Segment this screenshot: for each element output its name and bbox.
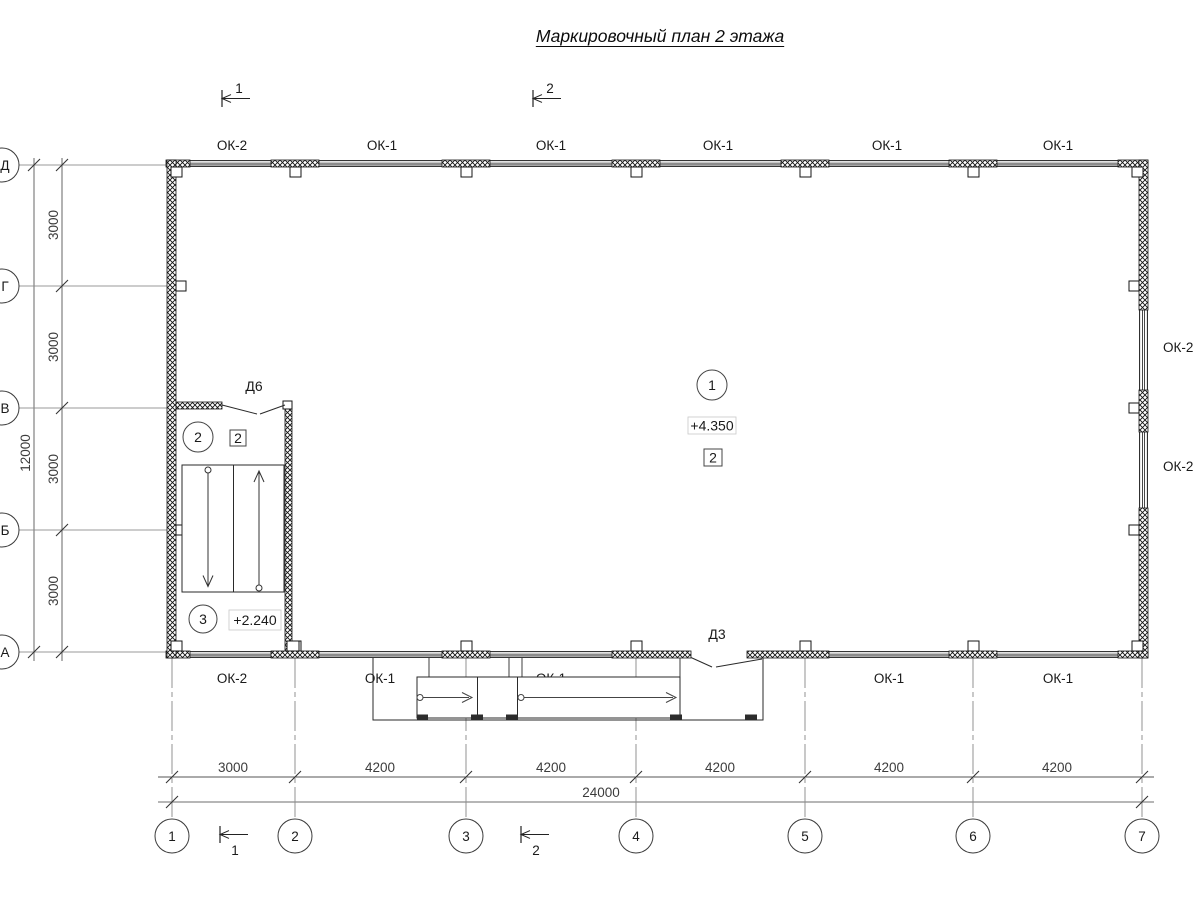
window-label-top: ОК-1 (536, 138, 566, 153)
window-labels: ОК-2ОК-1ОК-1ОК-1ОК-1ОК-1ОК-2ОК-1ОК-1ОК-1… (217, 138, 1194, 686)
section-marker-top-1: 1 (222, 81, 250, 107)
exterior-staircase (373, 658, 763, 721)
plan-canvas: 3000420042004200420042002400030003000300… (0, 0, 1200, 900)
elevation-mark: +4.350 (690, 418, 733, 434)
window-label-right: ОК-2 (1163, 340, 1193, 355)
dimension-label: 3000 (46, 576, 61, 606)
dimension-total-label: 24000 (582, 785, 620, 800)
window-label-top: ОК-1 (367, 138, 397, 153)
section-label: 2 (532, 843, 540, 858)
axis-column-bubble-label: 4 (632, 829, 640, 844)
dimension-label: 4200 (536, 760, 566, 775)
dimension-label: 4200 (1042, 760, 1072, 775)
axis-column-bubble-label: 1 (168, 829, 176, 844)
window-openings (190, 161, 1147, 658)
exterior-walls (166, 160, 1148, 658)
window-label-top: ОК-1 (703, 138, 733, 153)
wall-piers (171, 167, 1143, 651)
room-mark-hall: 1 +4.350 2 (688, 370, 736, 466)
axis-column-bubble-label: 7 (1138, 829, 1146, 844)
window-label-right: ОК-2 (1163, 459, 1193, 474)
dimension-label: 3000 (46, 210, 61, 240)
axis-row-bubble-label: Б (1, 523, 10, 538)
section-marker-bottom-2: 2 (521, 826, 549, 858)
section-label: 1 (235, 81, 243, 96)
dimension-label: 3000 (46, 332, 61, 362)
floor-plan-drawing: Маркировочный план 2 этажа 3000420042004… (0, 0, 1200, 900)
finish-tag: 2 (709, 450, 717, 466)
dimension-total-label: 12000 (18, 434, 33, 472)
dimension-label: 4200 (874, 760, 904, 775)
window-label-bottom: ОК-1 (365, 671, 395, 686)
dimension-label: 4200 (365, 760, 395, 775)
axis-column-bubble-label: 2 (291, 829, 299, 844)
section-marker-bottom-1: 1 (220, 826, 248, 858)
window-label-bottom: ОК-1 (874, 671, 904, 686)
door-d6-leaves (222, 405, 285, 414)
door-label-d6: Д6 (245, 378, 262, 394)
window-label-bottom: ОК-2 (217, 671, 247, 686)
room-mark-stair-upper: 2 2 (183, 422, 246, 452)
window-label-top: ОК-1 (1043, 138, 1073, 153)
section-label: 2 (546, 81, 554, 96)
dimension-label: 4200 (705, 760, 735, 775)
axis-column-bubble-label: 5 (801, 829, 809, 844)
room-mark-stair-lower: 3 +2.240 (189, 605, 281, 633)
axis-row-bubble-label: Г (1, 279, 9, 294)
elevation-mark: +2.240 (233, 612, 276, 628)
window-label-top: ОК-2 (217, 138, 247, 153)
room-number: 3 (199, 611, 207, 627)
axis-row-bubble-label: Д (0, 158, 9, 173)
finish-tag: 2 (234, 430, 242, 446)
dimension-label: 3000 (46, 454, 61, 484)
axis-column-bubble-label: 6 (969, 829, 977, 844)
window-label-bottom: ОК-1 (1043, 671, 1073, 686)
axis-column-bubble-label: 3 (462, 829, 470, 844)
window-label-top: ОК-1 (872, 138, 902, 153)
dimension-label: 3000 (218, 760, 248, 775)
room-number: 1 (708, 377, 716, 393)
door-d3-leaves (691, 658, 762, 668)
axis-row-bubble-label: В (0, 401, 9, 416)
room-number: 2 (194, 429, 202, 445)
section-marker-top-2: 2 (533, 81, 561, 107)
door-label-d3: Д3 (708, 626, 725, 642)
section-label: 1 (231, 843, 239, 858)
axis-row-bubble-label: А (0, 645, 9, 660)
